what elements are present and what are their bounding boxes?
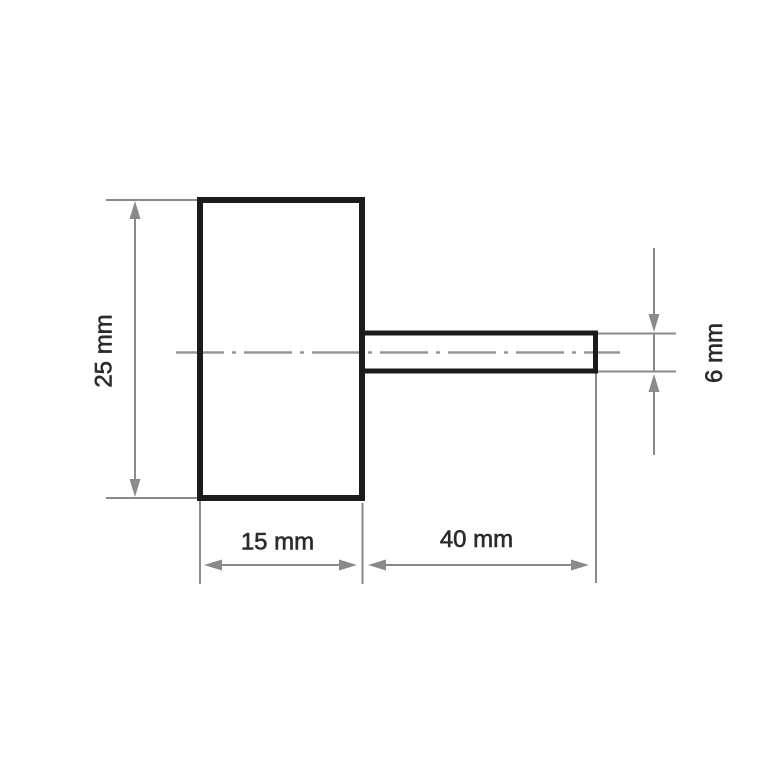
svg-text:40 mm: 40 mm (440, 526, 513, 553)
svg-text:6 mm: 6 mm (701, 323, 728, 383)
svg-text:15 mm: 15 mm (241, 529, 314, 556)
svg-text:25 mm: 25 mm (91, 314, 118, 387)
